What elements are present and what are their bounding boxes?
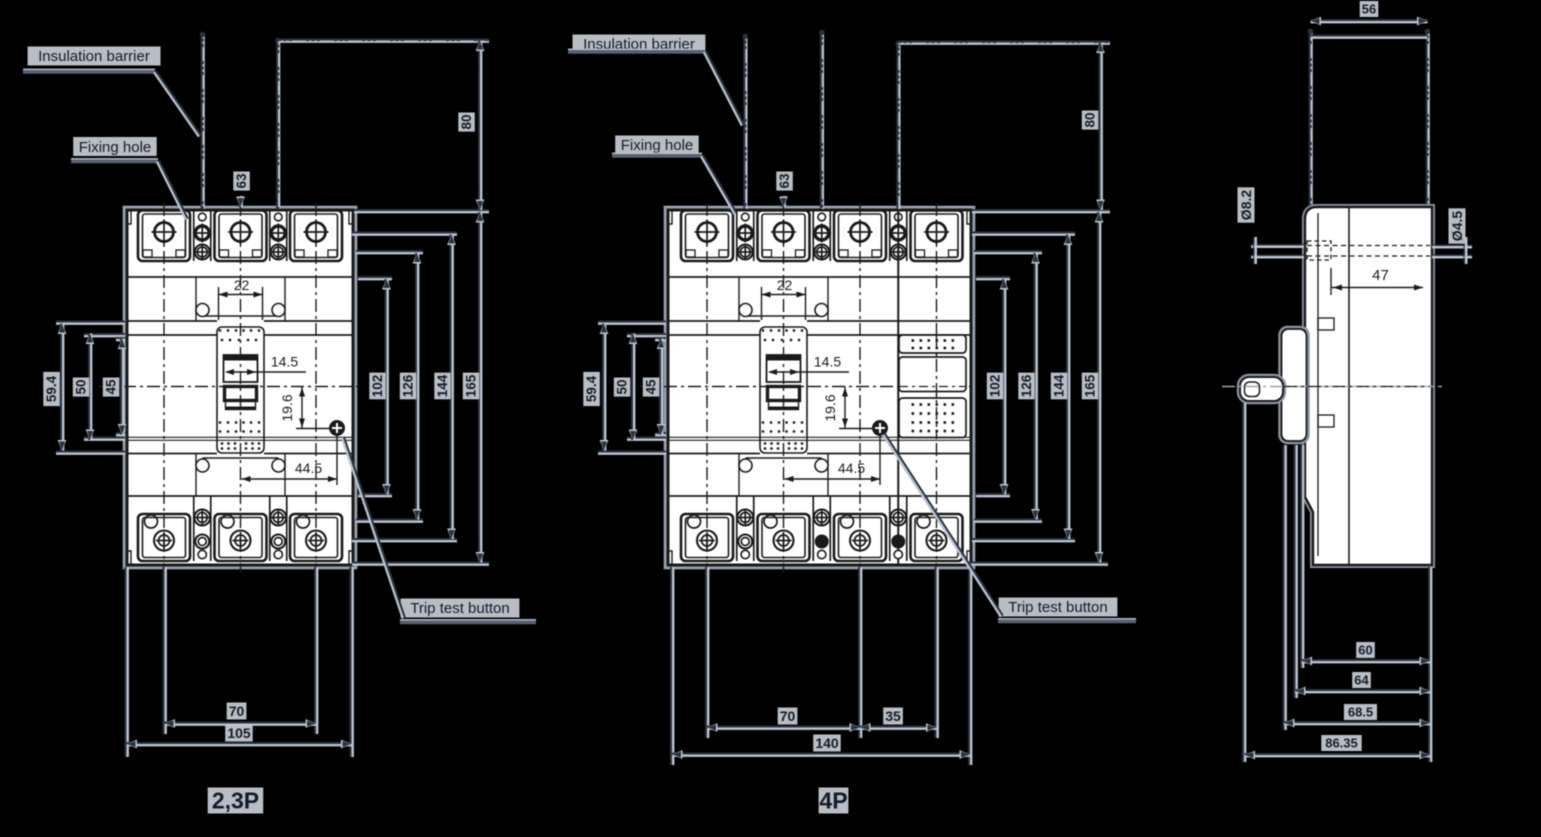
svg-text:45: 45 — [104, 379, 119, 395]
svg-text:44.5: 44.5 — [838, 460, 865, 476]
svg-text:80: 80 — [459, 114, 474, 129]
svg-text:102: 102 — [370, 375, 385, 398]
svg-text:47: 47 — [1372, 267, 1389, 284]
svg-text:63: 63 — [234, 173, 249, 189]
svg-text:Ø8.2: Ø8.2 — [1238, 190, 1254, 221]
svg-text:59.4: 59.4 — [584, 375, 599, 402]
svg-text:Trip test button: Trip test button — [410, 600, 510, 617]
svg-text:14.5: 14.5 — [814, 353, 841, 369]
svg-text:102: 102 — [988, 375, 1003, 398]
svg-text:19.6: 19.6 — [279, 394, 295, 421]
svg-text:60: 60 — [1358, 643, 1372, 658]
svg-text:56: 56 — [1362, 2, 1376, 17]
svg-text:Insulation barrier: Insulation barrier — [38, 48, 150, 65]
svg-text:126: 126 — [401, 374, 416, 397]
svg-text:144: 144 — [1052, 374, 1067, 397]
svg-text:22: 22 — [777, 277, 793, 293]
svg-text:45: 45 — [644, 379, 659, 395]
svg-text:80: 80 — [1083, 112, 1098, 127]
svg-text:4P: 4P — [819, 788, 847, 814]
svg-text:35: 35 — [885, 708, 901, 724]
svg-text:Fixing hole: Fixing hole — [621, 137, 694, 154]
svg-text:50: 50 — [74, 379, 89, 394]
svg-text:144: 144 — [435, 374, 450, 397]
svg-text:70: 70 — [780, 708, 796, 724]
svg-text:59.4: 59.4 — [44, 375, 59, 402]
svg-text:44.5: 44.5 — [295, 460, 322, 476]
svg-text:14.5: 14.5 — [271, 353, 298, 369]
svg-text:68.5: 68.5 — [1348, 705, 1373, 720]
svg-text:2,3P: 2,3P — [212, 788, 259, 814]
svg-text:64: 64 — [1354, 673, 1369, 688]
svg-text:105: 105 — [227, 725, 251, 741]
svg-text:140: 140 — [815, 735, 839, 751]
svg-text:165: 165 — [1083, 374, 1098, 397]
svg-text:63: 63 — [777, 173, 792, 189]
svg-text:Ø4.5: Ø4.5 — [1449, 211, 1465, 242]
svg-text:50: 50 — [615, 379, 630, 394]
svg-text:22: 22 — [234, 277, 250, 293]
svg-text:86.35: 86.35 — [1325, 736, 1358, 751]
svg-text:19.6: 19.6 — [822, 394, 838, 421]
svg-text:126: 126 — [1019, 374, 1034, 397]
svg-text:Fixing hole: Fixing hole — [79, 139, 152, 156]
svg-text:Trip test button: Trip test button — [1008, 599, 1108, 616]
svg-text:165: 165 — [464, 374, 479, 397]
svg-text:70: 70 — [229, 703, 245, 719]
